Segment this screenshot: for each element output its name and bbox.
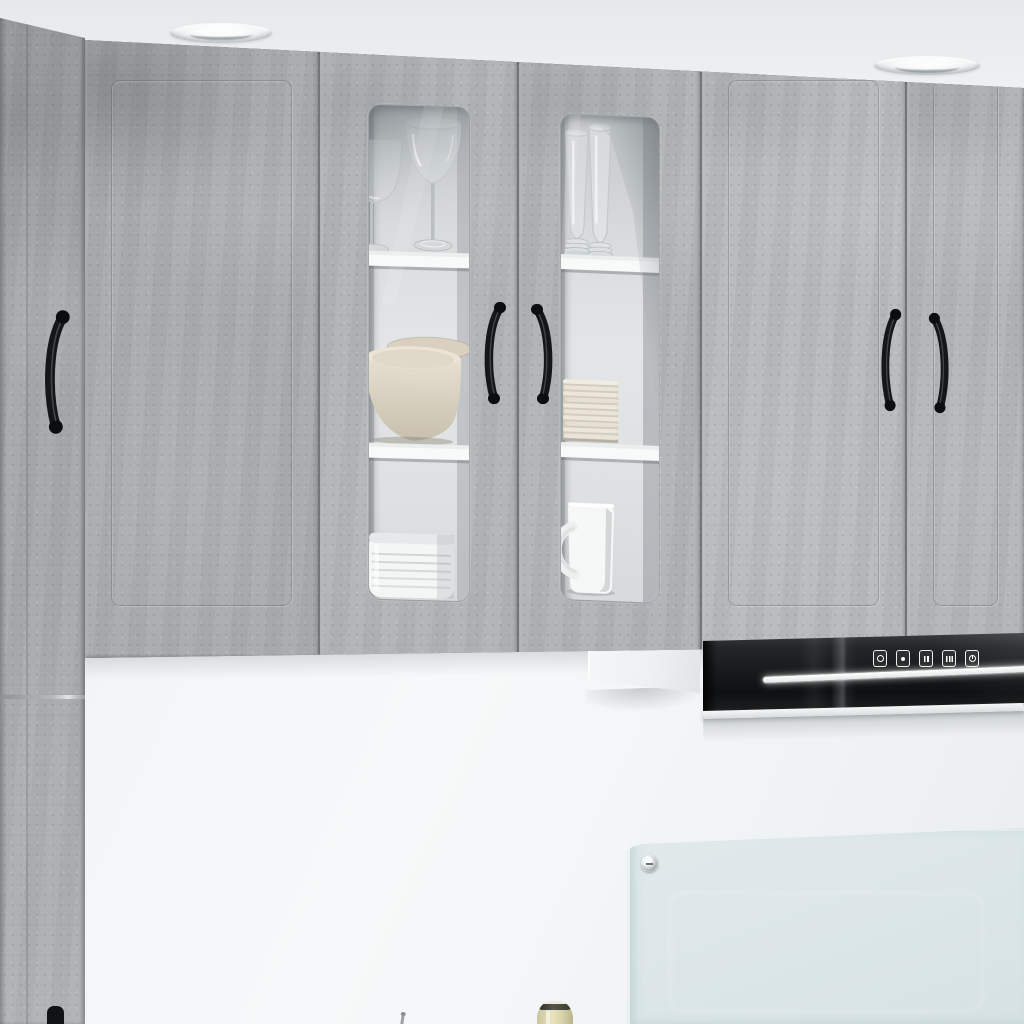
light-icon[interactable] bbox=[896, 650, 910, 667]
utensil-tip bbox=[400, 1014, 405, 1024]
cabinet-handle bbox=[482, 300, 508, 406]
glass-display-window-left bbox=[368, 104, 470, 603]
under-cabinet-box bbox=[588, 644, 700, 694]
spotlight-core bbox=[895, 61, 959, 72]
cabinet-handle bbox=[42, 308, 72, 436]
cabinet-door-plain-center bbox=[702, 38, 905, 658]
glass-splashback-panel bbox=[627, 828, 1024, 1024]
splashback-screw-icon bbox=[641, 855, 658, 872]
panel-edge bbox=[0, 18, 6, 1024]
power-icon[interactable] bbox=[873, 650, 887, 667]
cabinet-door-plain-right bbox=[907, 38, 1024, 658]
fan-high-glyph bbox=[946, 656, 953, 662]
bottle-cap-band bbox=[539, 1004, 571, 1010]
door-seam bbox=[0, 695, 85, 699]
shelf bbox=[369, 443, 469, 464]
recessed-spotlight-icon bbox=[874, 56, 980, 75]
spotlight-core bbox=[190, 29, 251, 41]
fan-low-icon[interactable] bbox=[919, 650, 933, 667]
cabinet-shading bbox=[0, 722, 85, 1024]
cabinet-handle bbox=[47, 1006, 64, 1024]
power-glyph bbox=[877, 655, 884, 662]
beige-bowls bbox=[369, 335, 469, 446]
door-groove bbox=[111, 80, 292, 606]
tall-cabinet-left bbox=[0, 18, 85, 1024]
splashback-reflection bbox=[669, 892, 983, 1012]
cabinet-handle bbox=[879, 307, 903, 413]
plate-stack bbox=[563, 379, 619, 443]
cabinet-door-plain-left bbox=[85, 38, 318, 658]
door-groove bbox=[728, 80, 879, 606]
timer-glyph bbox=[969, 655, 976, 662]
ribbed-bowl bbox=[369, 533, 454, 599]
panel-seam bbox=[26, 18, 28, 1024]
kitchen-cabinet-product-photo: Product photo of a concrete-grey kitchen… bbox=[0, 0, 1024, 1024]
recessed-spotlight-icon bbox=[170, 23, 272, 43]
fan-low-glyph bbox=[924, 656, 929, 662]
light-glyph bbox=[901, 657, 905, 661]
mug bbox=[561, 502, 615, 597]
glass-bottle bbox=[537, 1001, 573, 1024]
glass-window-right-art bbox=[561, 114, 659, 603]
hood-button-row bbox=[873, 650, 979, 667]
hood-end-cap bbox=[703, 633, 717, 721]
bottle-highlight bbox=[546, 1010, 550, 1024]
cabinet-handle bbox=[927, 311, 951, 415]
fan-high-icon[interactable] bbox=[942, 650, 956, 667]
glass-display-window-right bbox=[560, 113, 660, 604]
cabinet-handle bbox=[529, 302, 555, 406]
timer-icon[interactable] bbox=[965, 650, 979, 667]
glass-window-left-art bbox=[369, 105, 469, 602]
